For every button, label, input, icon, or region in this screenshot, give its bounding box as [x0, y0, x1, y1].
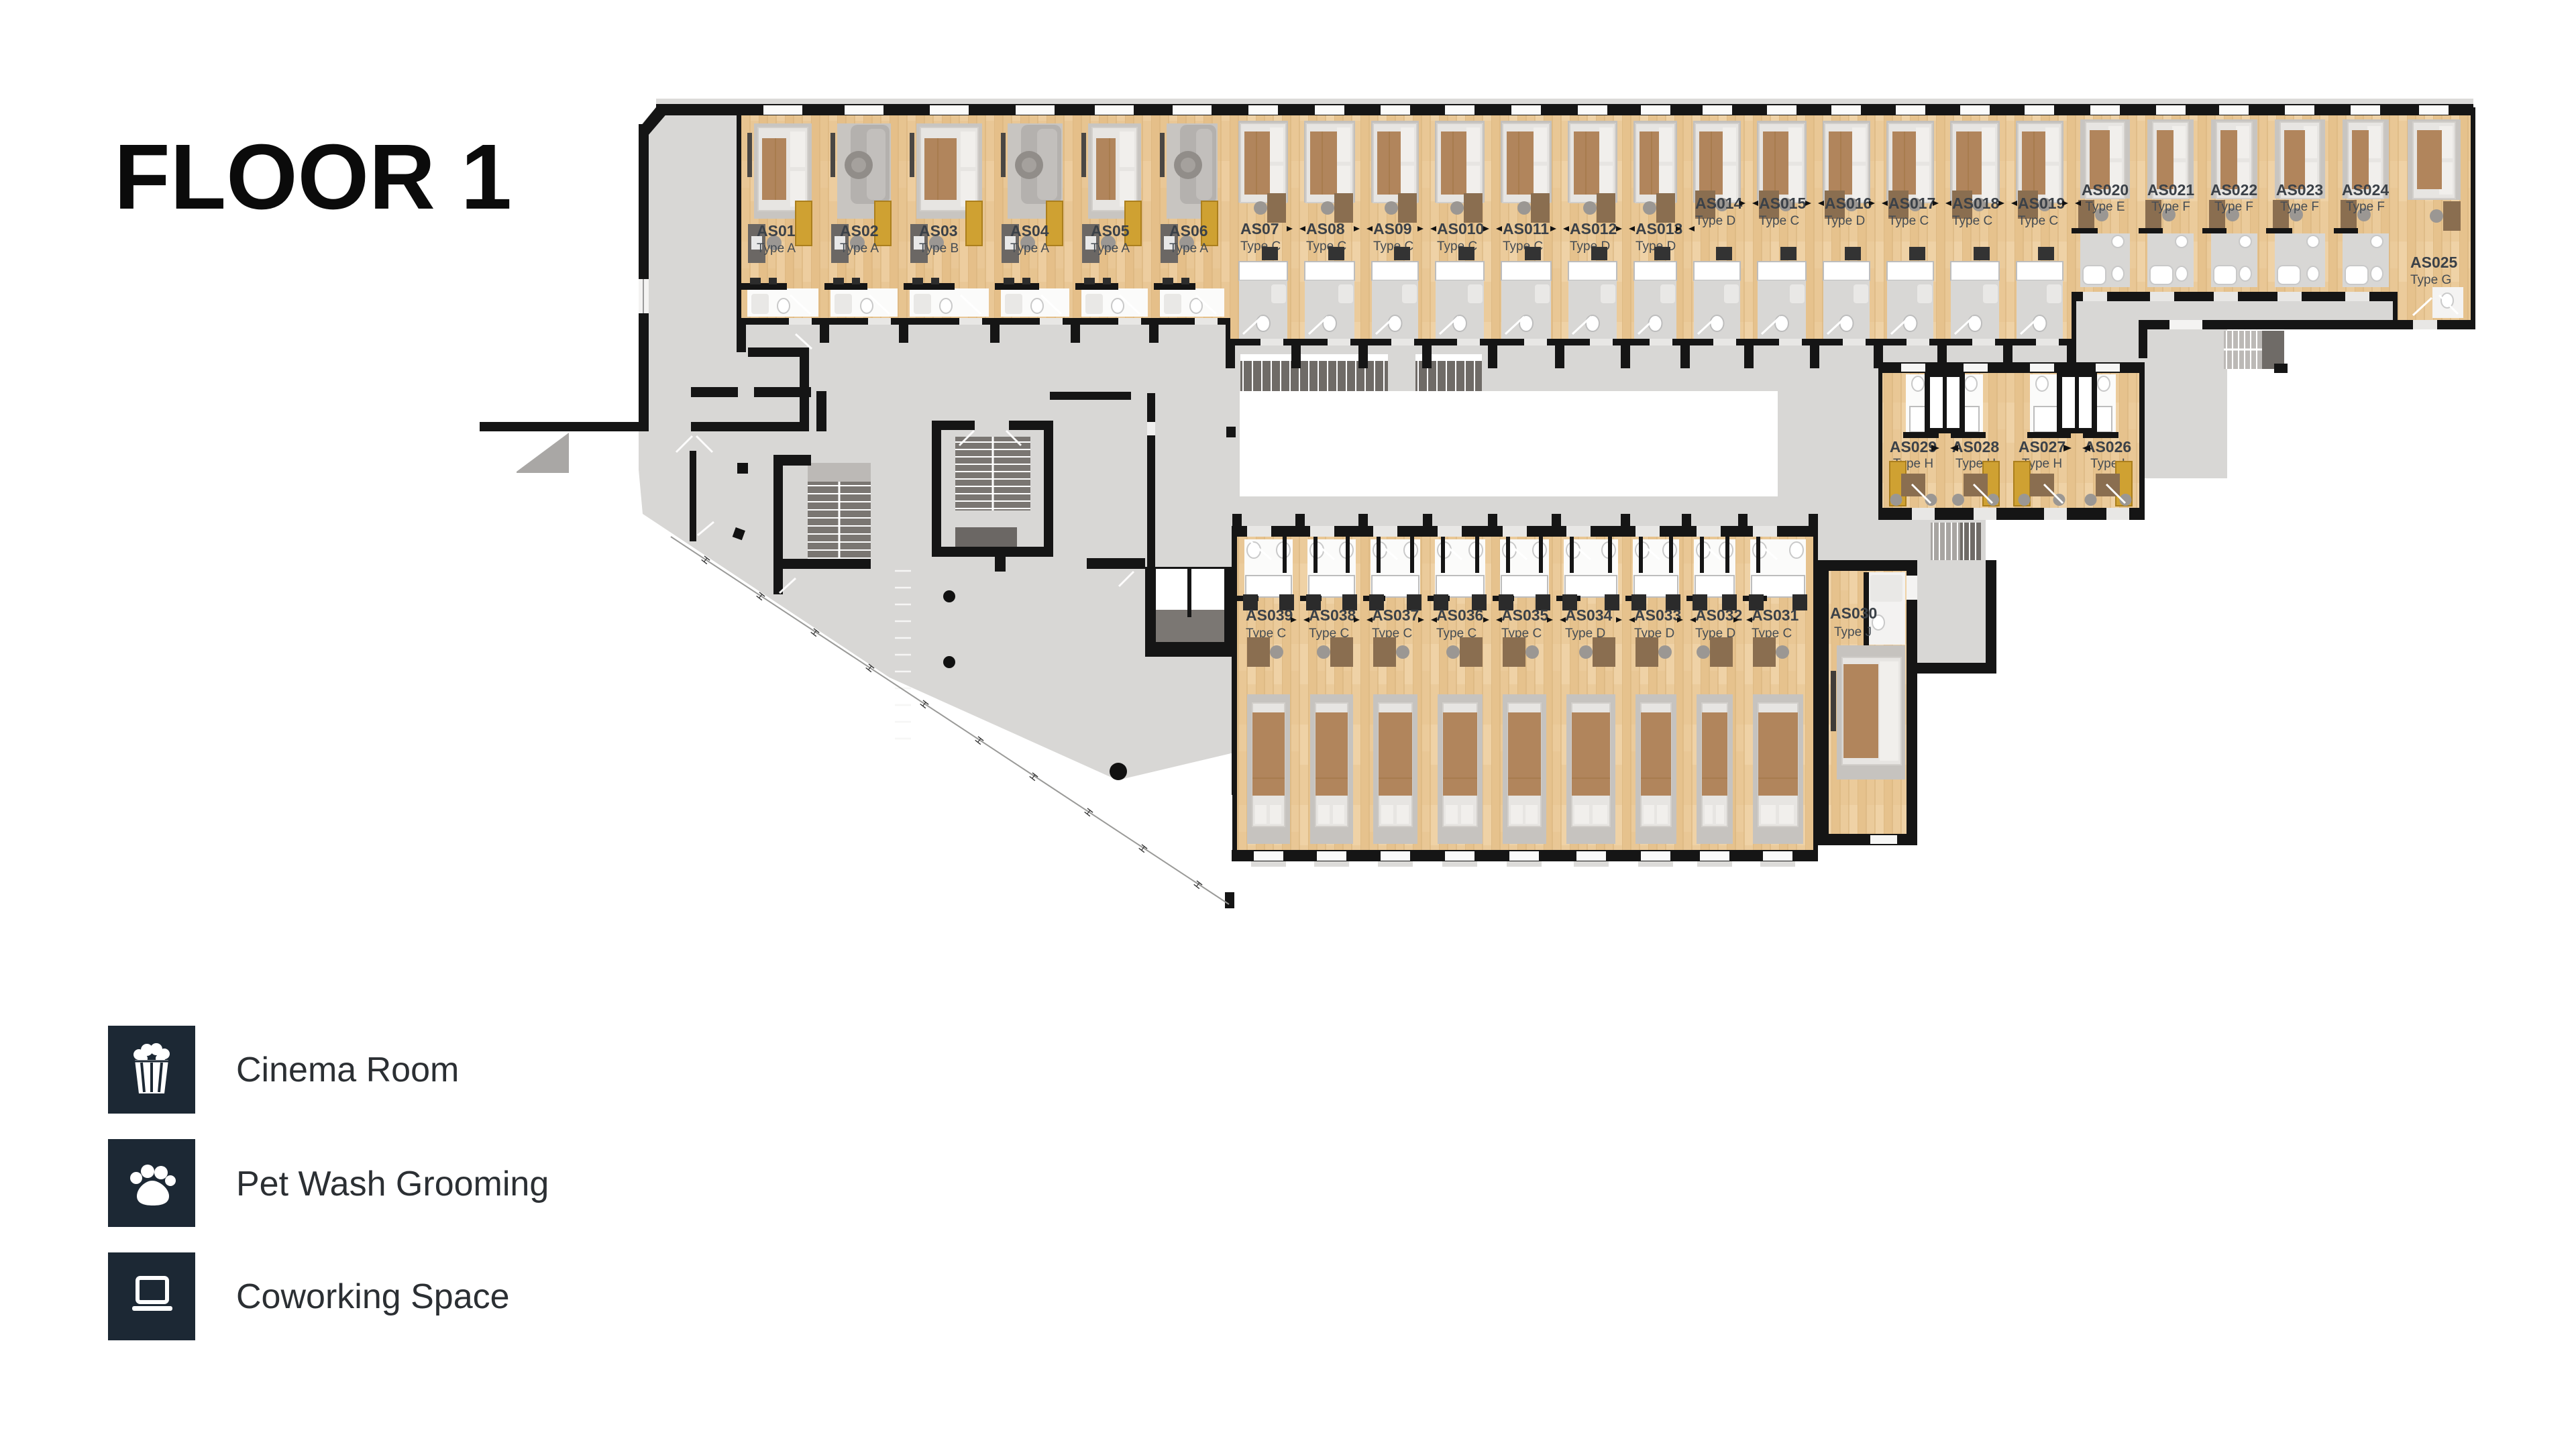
svg-text:AS039: AS039 [1246, 606, 1293, 624]
svg-text:Type D: Type D [1695, 214, 1735, 228]
svg-text:AS031: AS031 [1752, 606, 1799, 624]
svg-text:Type A: Type A [1091, 241, 1130, 256]
svg-text:Type C: Type C [1888, 214, 1929, 228]
svg-text:AS036: AS036 [1436, 606, 1483, 624]
svg-text:Type C: Type C [2018, 214, 2058, 228]
svg-text:Cinema Room: Cinema Room [236, 1051, 459, 1089]
svg-text:AS033: AS033 [1634, 606, 1681, 624]
svg-text:AS034: AS034 [1565, 606, 1613, 624]
svg-text:AS022: AS022 [2210, 181, 2257, 199]
svg-text:AS023: AS023 [2276, 181, 2323, 199]
svg-text:AS03: AS03 [919, 222, 958, 239]
svg-text:Type F: Type F [2280, 200, 2319, 214]
svg-text:AS08: AS08 [1306, 220, 1345, 237]
svg-text:AS030: AS030 [1830, 604, 1877, 622]
svg-text:AS035: AS035 [1501, 606, 1549, 624]
svg-text:Type E: Type E [2085, 200, 2125, 214]
svg-text:AS020: AS020 [2082, 181, 2129, 199]
svg-text:Type D: Type D [1825, 214, 1865, 228]
svg-text:AS024: AS024 [2342, 181, 2390, 199]
svg-text:AS028: AS028 [1952, 438, 2000, 455]
svg-text:AS025: AS025 [2410, 254, 2458, 271]
svg-text:AS011: AS011 [1503, 220, 1549, 237]
svg-text:AS029: AS029 [1890, 438, 1937, 455]
svg-text:AS026: AS026 [2084, 438, 2131, 455]
svg-text:AS037: AS037 [1372, 606, 1419, 624]
svg-text:Type F: Type F [2214, 200, 2253, 214]
svg-text:AS017: AS017 [1888, 195, 1935, 212]
svg-text:AS016: AS016 [1825, 195, 1872, 212]
svg-text:AS015: AS015 [1759, 195, 1807, 212]
svg-text:AS018: AS018 [1952, 195, 2000, 212]
svg-text:Coworking Space: Coworking Space [236, 1277, 510, 1316]
svg-text:Type A: Type A [1010, 241, 1049, 256]
svg-text:Pet Wash Grooming: Pet Wash Grooming [236, 1165, 549, 1203]
svg-text:AS04: AS04 [1010, 222, 1049, 239]
svg-text:Type F: Type F [2346, 200, 2385, 214]
svg-text:H: H [1082, 806, 1095, 819]
svg-text:AS013: AS013 [1635, 220, 1682, 237]
svg-text:AS01: AS01 [757, 222, 796, 239]
svg-text:AS038: AS038 [1309, 606, 1356, 624]
svg-text:AS027: AS027 [2019, 438, 2065, 455]
svg-text:AS019: AS019 [2018, 195, 2065, 212]
svg-text:AS07: AS07 [1240, 220, 1279, 237]
svg-text:AS021: AS021 [2147, 181, 2195, 199]
svg-text:AS014: AS014 [1695, 195, 1743, 212]
svg-text:Type F: Type F [2151, 200, 2190, 214]
svg-text:Type A: Type A [757, 241, 796, 256]
svg-text:Type C: Type C [1952, 214, 1992, 228]
svg-text:Type J: Type J [1834, 625, 1872, 639]
svg-text:Type A: Type A [840, 241, 879, 256]
svg-text:Type B: Type B [919, 241, 959, 256]
svg-text:AS09: AS09 [1373, 220, 1412, 237]
svg-text:AS012: AS012 [1570, 220, 1617, 237]
svg-text:FLOOR 1: FLOOR 1 [114, 125, 512, 229]
svg-text:Type C: Type C [1759, 214, 1799, 228]
svg-text:Type A: Type A [1169, 241, 1208, 256]
svg-text:AS06: AS06 [1169, 222, 1208, 239]
svg-text:AS010: AS010 [1437, 220, 1484, 237]
svg-text:AS02: AS02 [840, 222, 879, 239]
svg-text:AS05: AS05 [1091, 222, 1130, 239]
svg-text:Type G: Type G [2410, 273, 2451, 287]
